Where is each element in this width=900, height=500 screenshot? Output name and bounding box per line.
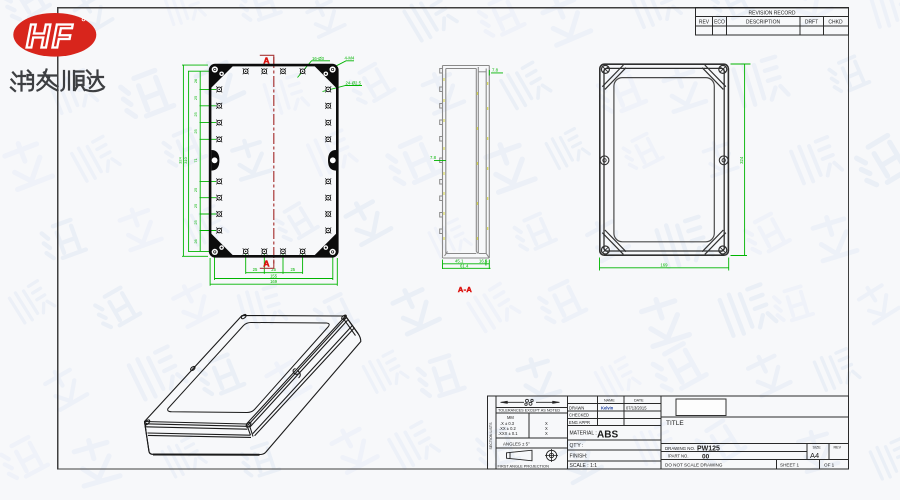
svg-text:25: 25	[193, 204, 198, 208]
svg-text:26: 26	[193, 239, 198, 243]
svg-text:SECTION LISTS: SECTION LISTS	[489, 422, 493, 450]
svg-text:A-A: A-A	[458, 285, 473, 294]
svg-text:ANGLES ± 5°: ANGLES ± 5°	[503, 442, 530, 447]
svg-text:324: 324	[739, 156, 744, 164]
svg-text:DESCRIPTION: DESCRIPTION	[746, 20, 781, 26]
svg-text:CHECKED: CHECKED	[569, 413, 589, 418]
svg-text:25: 25	[193, 129, 198, 133]
svg-text:07/13/2015: 07/13/2015	[626, 405, 647, 410]
svg-text:25: 25	[193, 112, 198, 116]
svg-text:CHKD: CHKD	[828, 20, 843, 26]
svg-text:NAME: NAME	[604, 399, 615, 403]
svg-text:61.4: 61.4	[460, 263, 469, 268]
svg-text:26: 26	[193, 79, 198, 83]
svg-text:MM: MM	[507, 415, 514, 420]
svg-text:PW125: PW125	[697, 446, 720, 453]
svg-text:SHEET 1: SHEET 1	[780, 463, 800, 468]
svg-text:25: 25	[193, 96, 198, 100]
svg-text:ECO: ECO	[714, 20, 725, 26]
svg-text:MATERIAL :: MATERIAL :	[570, 431, 597, 437]
svg-text:25: 25	[253, 267, 258, 272]
svg-text:A4: A4	[810, 451, 819, 460]
svg-text:7.8: 7.8	[492, 68, 499, 73]
svg-text:A: A	[263, 259, 269, 269]
svg-text:REV: REV	[699, 20, 710, 26]
svg-text:DO NOT SCALE DRAWING: DO NOT SCALE DRAWING	[665, 463, 723, 468]
svg-text:4-M4: 4-M4	[345, 56, 355, 61]
svg-text:SCALE : 1:1: SCALE : 1:1	[570, 463, 598, 469]
svg-text:24-Ø2.5: 24-Ø2.5	[346, 80, 362, 85]
svg-text:QT'Y :: QT'Y :	[570, 443, 584, 449]
svg-text:ENG APPR: ENG APPR	[569, 420, 590, 425]
svg-text:00: 00	[702, 454, 710, 461]
svg-text:DRFT: DRFT	[805, 20, 818, 26]
svg-text:25: 25	[290, 267, 295, 272]
svg-text:25: 25	[193, 188, 198, 192]
svg-text:FIRST ANGLE PROJECTION: FIRST ANGLE PROJECTION	[498, 463, 550, 468]
svg-text:REV: REV	[834, 445, 842, 449]
svg-text:X: X	[545, 431, 548, 436]
svg-text:324: 324	[178, 156, 183, 163]
svg-text:7.8: 7.8	[430, 155, 437, 160]
svg-text:DATE: DATE	[634, 399, 644, 403]
svg-text:/PART NO.: /PART NO.	[668, 454, 688, 459]
svg-text:71: 71	[193, 158, 198, 162]
svg-text:16.5: 16.5	[479, 259, 488, 264]
svg-text:169: 169	[660, 263, 668, 268]
svg-text:155: 155	[270, 273, 278, 278]
svg-text:ABS: ABS	[597, 430, 618, 441]
svg-text:DRAWN: DRAWN	[569, 405, 584, 410]
svg-text:169: 169	[270, 279, 278, 284]
svg-text:Kelvin: Kelvin	[601, 405, 614, 410]
svg-text:TITLE: TITLE	[666, 420, 684, 427]
svg-text:DRAWING NO.: DRAWING NO.	[665, 446, 695, 451]
svg-text:HF: HF	[26, 18, 74, 55]
svg-text:OF 1: OF 1	[824, 463, 835, 468]
svg-text:25: 25	[193, 220, 198, 224]
svg-text:FINISH:: FINISH:	[570, 454, 588, 460]
svg-text:TOLERANCES EXCEPT AS NOTED: TOLERANCES EXCEPT AS NOTED	[498, 408, 560, 412]
svg-text:310: 310	[183, 156, 188, 163]
svg-text:.XXX ± 0.1: .XXX ± 0.1	[498, 431, 518, 436]
svg-text:16-Ø3: 16-Ø3	[312, 56, 325, 61]
svg-text:REVISION RECORD: REVISION RECORD	[749, 11, 796, 17]
svg-text:SIZE: SIZE	[813, 445, 822, 449]
